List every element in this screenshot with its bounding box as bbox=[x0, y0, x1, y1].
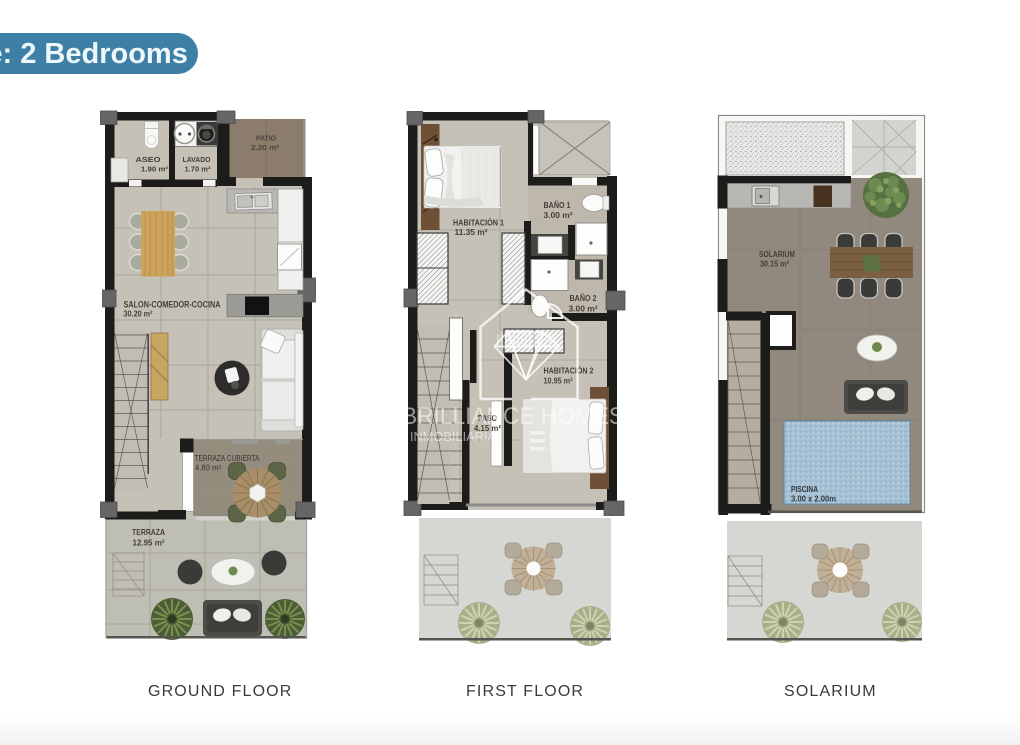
svg-text:12.95 m²: 12.95 m² bbox=[133, 539, 165, 548]
svg-text:INMOBILIARIA: INMOBILIARIA bbox=[410, 430, 497, 444]
svg-text:3.00 x 2.00m: 3.00 x 2.00m bbox=[791, 495, 836, 504]
svg-text:BAÑO 1: BAÑO 1 bbox=[544, 200, 571, 210]
svg-text:TERRAZA CUBIERTA: TERRAZA CUBIERTA bbox=[195, 453, 260, 463]
svg-text:PISCINA: PISCINA bbox=[791, 484, 818, 494]
svg-text:11.35 m²: 11.35 m² bbox=[455, 228, 488, 237]
svg-text:4.80 m²: 4.80 m² bbox=[195, 464, 221, 473]
svg-text:2.20 m²: 2.20 m² bbox=[251, 143, 280, 152]
svg-text:SOLARIUM: SOLARIUM bbox=[759, 249, 795, 259]
svg-text:LAVADO: LAVADO bbox=[183, 155, 211, 164]
svg-text:30.20 m²: 30.20 m² bbox=[124, 309, 153, 319]
svg-text:1.70 m²: 1.70 m² bbox=[185, 165, 212, 174]
svg-text:1.90 m²: 1.90 m² bbox=[141, 165, 169, 174]
svg-text:PATIO: PATIO bbox=[256, 134, 276, 143]
svg-text:30.15 m²: 30.15 m² bbox=[760, 260, 789, 269]
svg-text:BRILLIANCE HOMES: BRILLIANCE HOMES bbox=[402, 403, 624, 430]
svg-text:ASEO: ASEO bbox=[136, 155, 161, 164]
svg-text:3.00 m²: 3.00 m² bbox=[544, 211, 573, 220]
svg-text:TERRAZA: TERRAZA bbox=[132, 527, 165, 537]
svg-text:HABITACIÓN 1: HABITACIÓN 1 bbox=[453, 217, 504, 228]
